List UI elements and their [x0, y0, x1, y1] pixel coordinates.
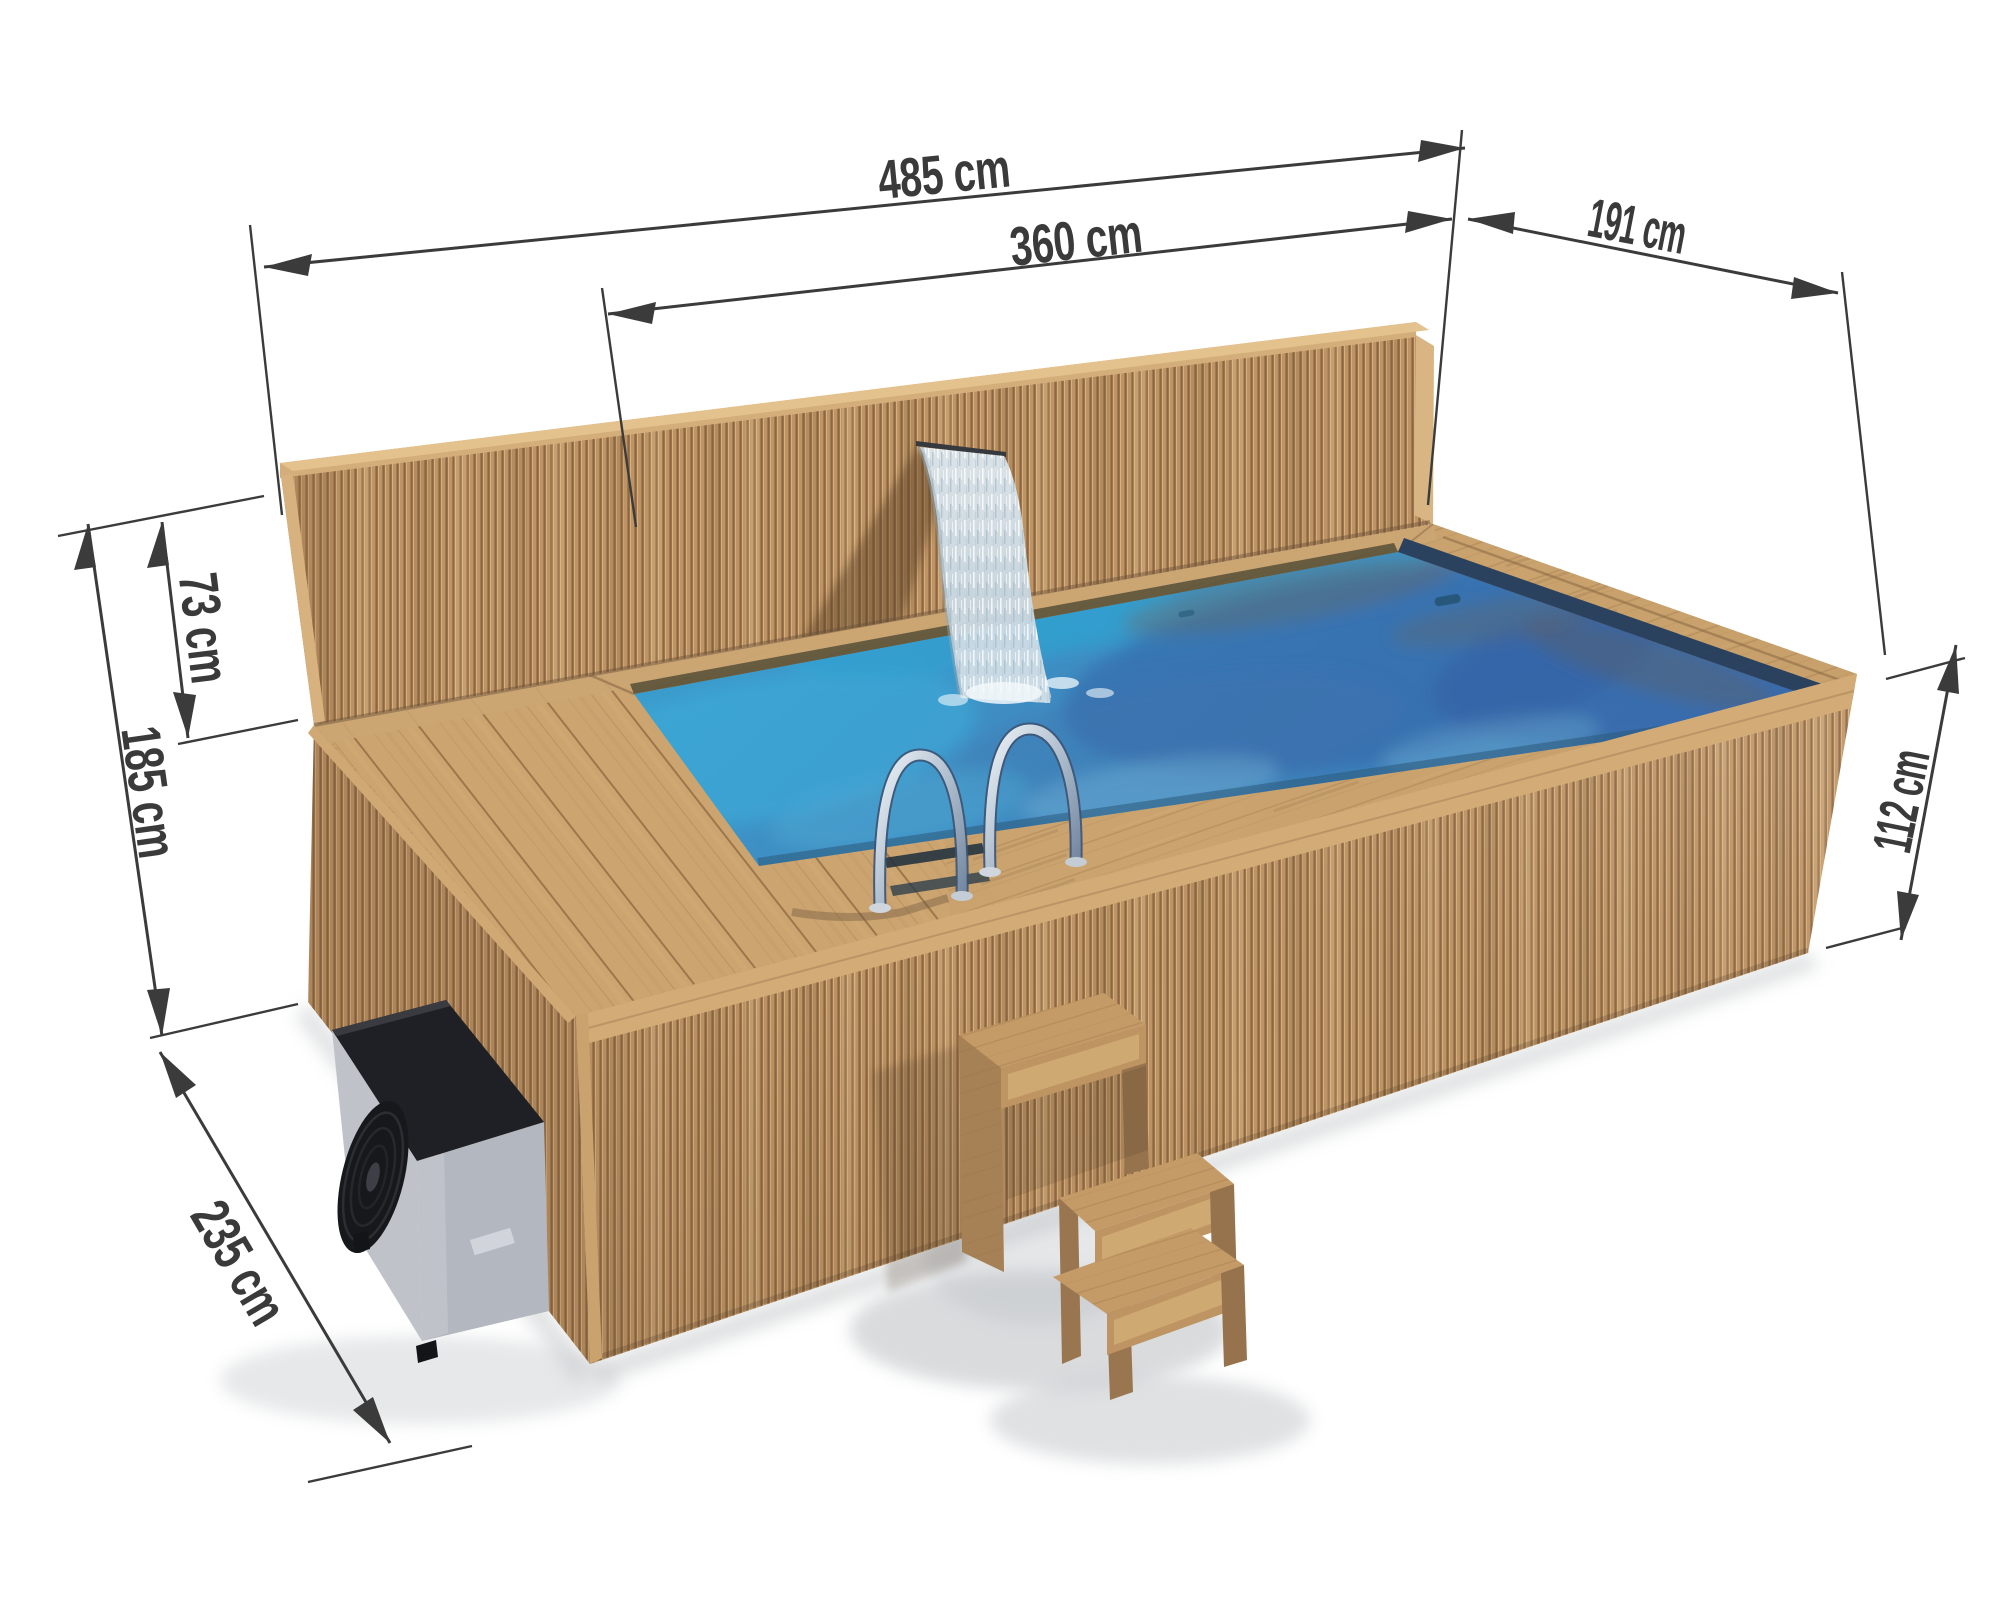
svg-text:485 cm: 485 cm — [875, 138, 1012, 211]
